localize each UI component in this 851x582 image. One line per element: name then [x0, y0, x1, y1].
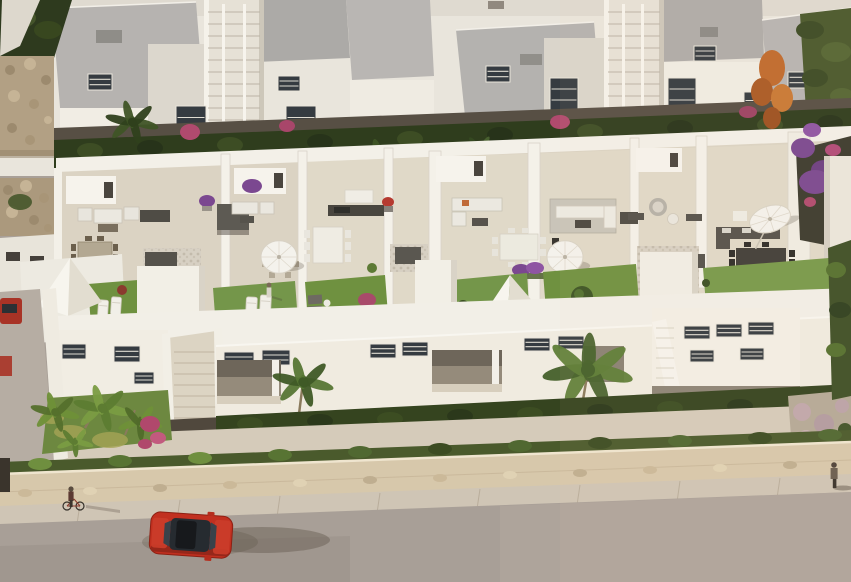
dining-chair [492, 249, 498, 256]
bulkhead-door [104, 182, 113, 198]
red-car-mirror [207, 512, 214, 516]
red-shrub [117, 285, 127, 295]
person-head [267, 283, 272, 288]
terrace-divider-wall [528, 143, 540, 313]
stone [5, 65, 15, 75]
small-window [6, 252, 20, 261]
armchair [78, 208, 92, 221]
hedge-bump [508, 440, 532, 452]
stone [7, 123, 17, 133]
stone [25, 135, 35, 145]
stone [44, 116, 52, 124]
dining-chair [285, 272, 291, 278]
hedge-bump [268, 449, 292, 461]
bougainvillea [138, 439, 152, 449]
red-flower-pot [382, 197, 394, 207]
red-car-roof [175, 520, 197, 549]
dining-chair [71, 244, 76, 251]
wall-stone [293, 479, 307, 487]
wall-stone [83, 487, 97, 495]
dining-chair [97, 236, 104, 241]
stone [3, 185, 13, 195]
rooftop-unit [96, 30, 122, 43]
planter-lavender [526, 262, 544, 274]
facade-window [62, 344, 86, 359]
kitchen-island [345, 190, 373, 203]
wall-stone [363, 476, 377, 484]
stone [20, 180, 32, 192]
dining-chair [540, 249, 546, 256]
side-table [324, 300, 331, 307]
pergola-shadow [217, 230, 249, 235]
sun-lounger [110, 297, 121, 316]
coffee-table [98, 224, 118, 232]
planter-pot [202, 206, 212, 211]
dining-table [500, 234, 538, 260]
outdoor-sofa [94, 209, 122, 223]
potted-plant [367, 263, 377, 273]
parked-car-partial [0, 356, 12, 376]
bg-roof [250, 0, 350, 62]
bulkhead-door [274, 173, 283, 188]
dining-chair [85, 236, 92, 241]
hedge-bump [428, 443, 452, 455]
porch-floor [432, 384, 502, 392]
armchair [124, 207, 139, 220]
dining-chair [492, 237, 498, 244]
bg-roof [346, 0, 434, 80]
outdoor-grill [140, 210, 170, 222]
dining-table [313, 227, 343, 263]
dining-chair [345, 230, 351, 238]
outdoor-sofa [452, 212, 466, 226]
pedestrian-body [68, 492, 73, 502]
stone [29, 215, 39, 225]
wall-stone [18, 489, 32, 497]
wall-stone [503, 471, 517, 479]
pedestrian-head [68, 486, 73, 491]
hedge-bump [188, 452, 212, 464]
dining-chair [508, 262, 515, 267]
storage-box [145, 252, 177, 267]
bulkhead-door [474, 161, 483, 176]
dining-chair [304, 230, 310, 238]
dining-chair [113, 244, 118, 251]
wall-stone [223, 481, 237, 489]
facade-window [402, 342, 428, 356]
bg-window [88, 74, 112, 90]
parked-car-glass [2, 304, 17, 313]
coffee-table [472, 218, 488, 226]
hedge-bump [348, 446, 372, 458]
planter-lavender [242, 179, 262, 193]
grill-top [334, 207, 350, 213]
outdoor-sofa [232, 202, 258, 214]
planter-pot [384, 206, 393, 212]
pedestrian-legs [70, 500, 73, 507]
vine-blob [8, 194, 32, 210]
bougainvillea [140, 416, 160, 432]
dining-chair [304, 254, 310, 262]
foliage-blob [34, 21, 62, 39]
dining-chair [522, 228, 529, 233]
armchair [260, 202, 274, 214]
rooftop-unit [520, 54, 542, 65]
warm-light-overlay [560, 0, 851, 582]
dining-chair [345, 254, 351, 262]
planter-lavender [199, 195, 215, 207]
architectural-render [0, 0, 851, 582]
wall-door-recess [0, 458, 10, 492]
dining-chair [540, 237, 546, 244]
dining-chair [345, 242, 351, 250]
gray-lounger [308, 295, 323, 305]
scene-svg [0, 0, 851, 582]
bg-window [278, 76, 300, 91]
hedge-bump [108, 455, 132, 467]
hedge-bump [137, 140, 163, 156]
sofa-pillow [462, 200, 469, 206]
pink-shrub [180, 124, 200, 140]
red-car-mirror [204, 557, 211, 561]
stone-wall-shade [0, 150, 54, 158]
porch-shadow [217, 360, 281, 377]
stone [44, 224, 52, 232]
dining-chair [508, 228, 515, 233]
distant-window [488, 1, 504, 9]
coffee-table [240, 216, 254, 223]
facade-window [114, 346, 140, 362]
wall-stone [153, 484, 167, 492]
stone [29, 99, 39, 109]
stone [24, 58, 36, 70]
stone [39, 193, 49, 203]
hedge-bump [217, 137, 243, 153]
facade-window [524, 338, 550, 351]
bougainvillea [150, 432, 166, 444]
stone [41, 75, 51, 85]
wall-stone [433, 474, 447, 482]
dining-chair [304, 242, 310, 250]
outdoor-sofa [452, 198, 502, 211]
porch-floor [217, 396, 281, 404]
porch-shadow [432, 350, 502, 366]
wildflower-patch [92, 432, 128, 448]
pink-shrub [279, 120, 295, 132]
hedge-bump [28, 458, 52, 470]
bg-window [486, 66, 510, 82]
stone [8, 90, 20, 102]
facade-window [370, 344, 396, 358]
facade-window [134, 372, 154, 384]
person-body [267, 288, 272, 298]
